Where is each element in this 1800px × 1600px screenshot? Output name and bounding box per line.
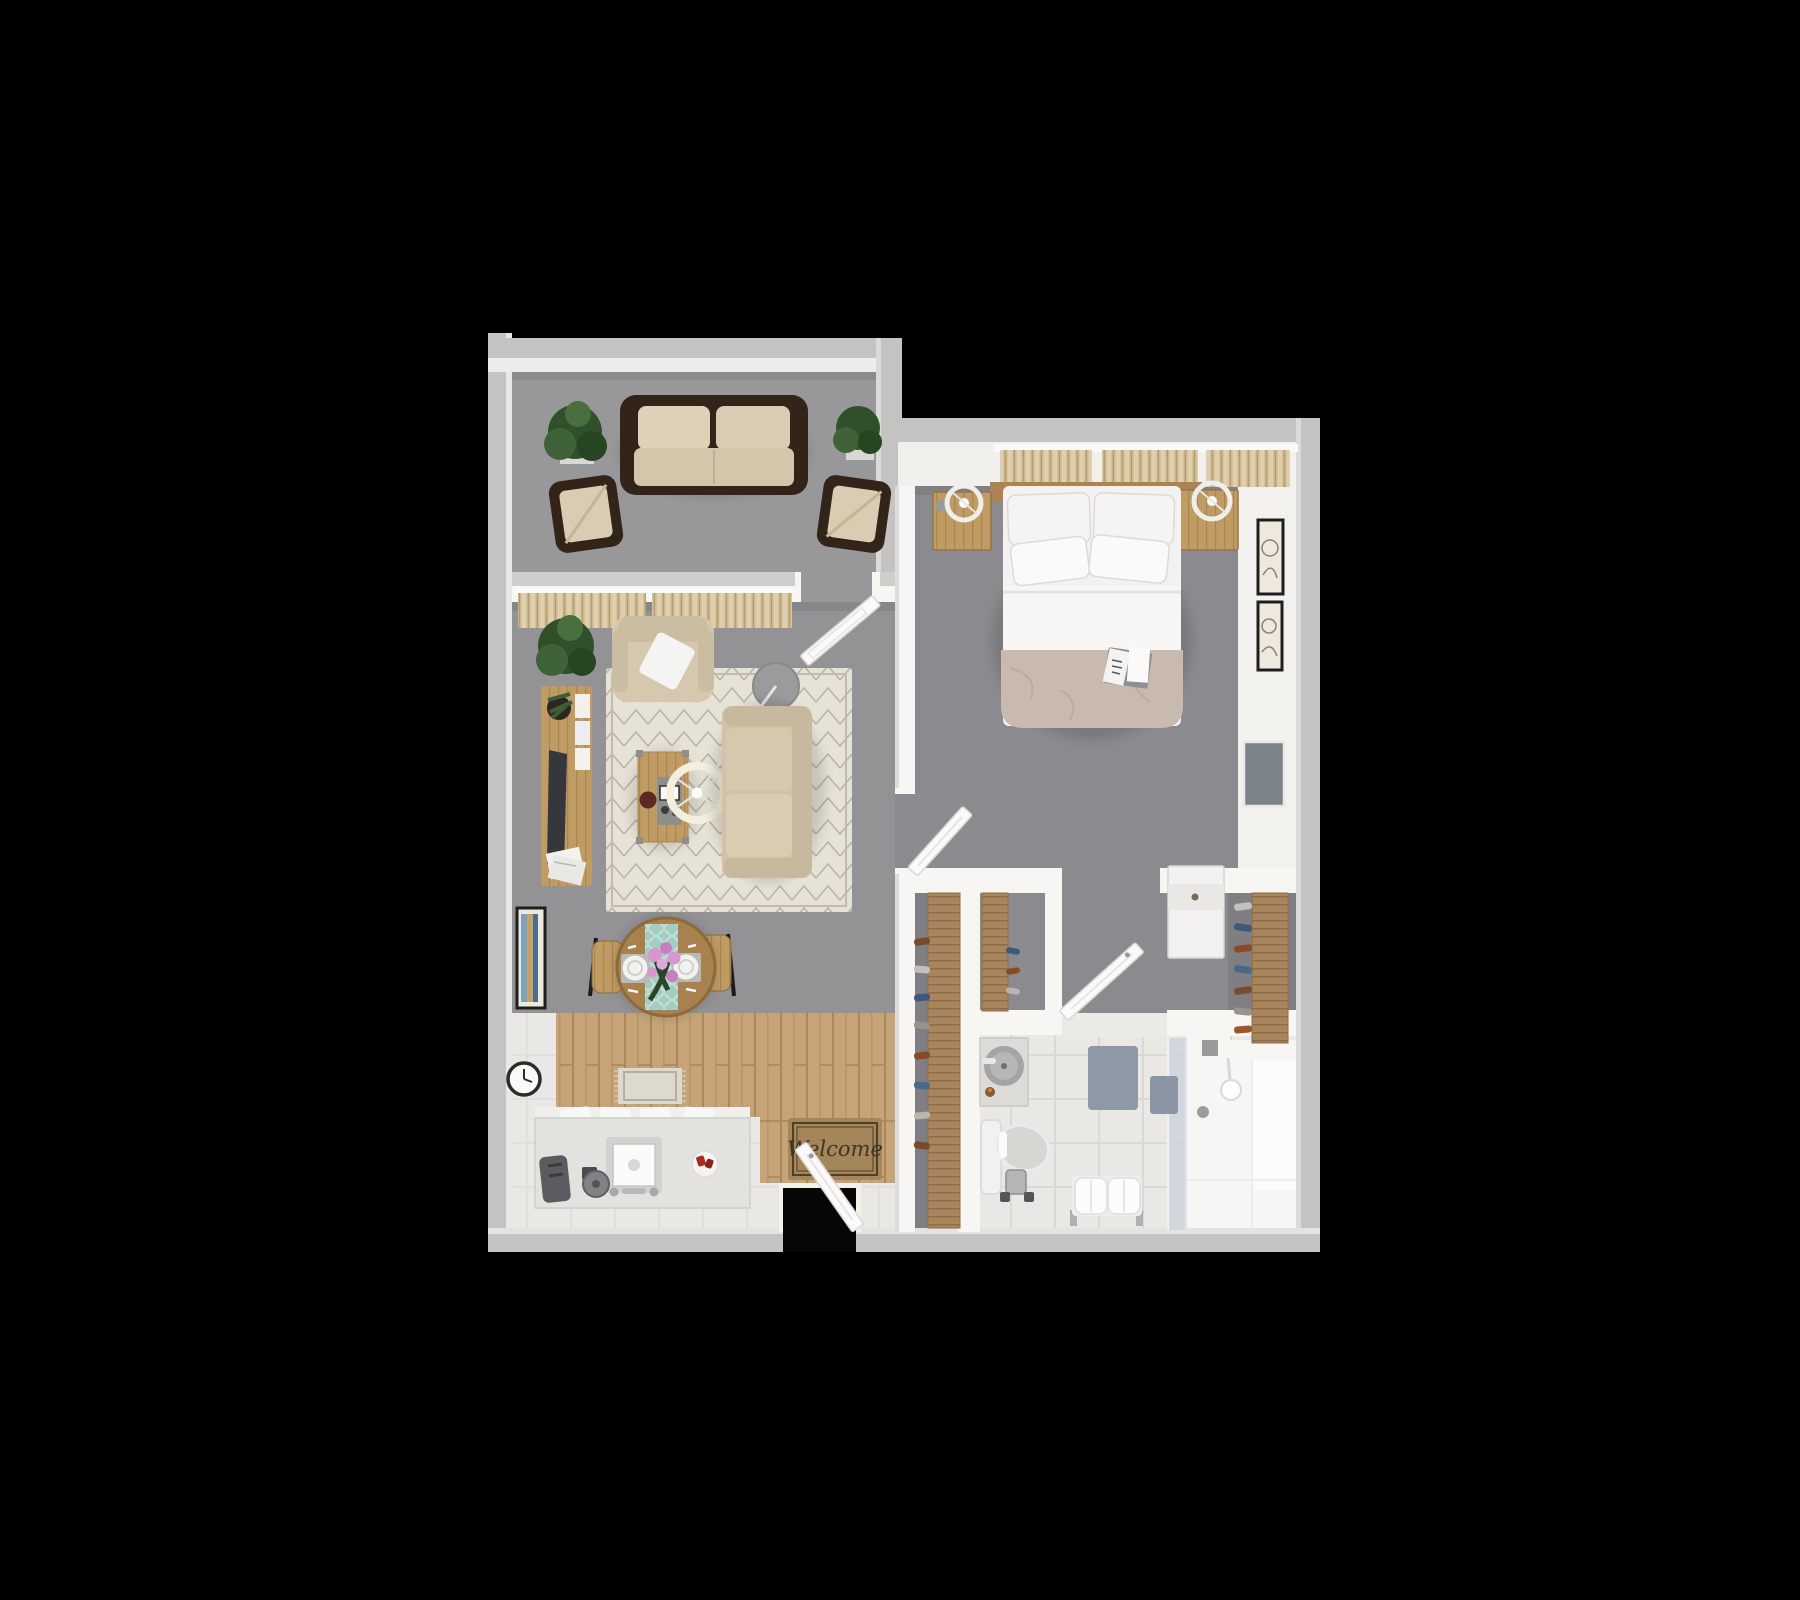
armchair-arm-left [612, 630, 628, 692]
kitchen-sink [606, 1137, 662, 1197]
shower-glass [1168, 1038, 1186, 1230]
dining-table [614, 915, 718, 1019]
wall-art [517, 908, 545, 1008]
outdoor-sofa-pillow-left [638, 406, 710, 450]
wall-frame-upper [1258, 520, 1283, 594]
patio-armchair-left [547, 474, 624, 555]
faucet [622, 1188, 646, 1194]
patio-right-wall-edge [876, 338, 881, 594]
outer-wall-right-edge [1296, 418, 1301, 1252]
towel-on-glass [1150, 1076, 1178, 1114]
bedroom-wall-tv [1244, 742, 1284, 806]
bath-mat [1088, 1046, 1138, 1110]
pillow-front-right [1088, 534, 1170, 584]
patio-armchair-right [815, 474, 892, 555]
pillow-front-left [1010, 536, 1091, 587]
outer-wall-patio-top [488, 338, 900, 360]
shower [1150, 1038, 1296, 1230]
closet-divider-wall [958, 893, 980, 1232]
basin-faucet [982, 1058, 996, 1064]
dresser [1168, 866, 1224, 958]
nightstand-left [933, 486, 991, 550]
sofa-cushion-bottom [726, 794, 792, 857]
nightstand-right [1178, 483, 1238, 550]
dresser-knob [1192, 894, 1199, 901]
toilet-tank [981, 1120, 1001, 1194]
outer-wall-patio-top-edge [488, 358, 900, 372]
bathroom-top-wall-left [980, 1010, 1062, 1035]
wall-shaft [1202, 1040, 1218, 1056]
patio-door-jamb-left [795, 572, 801, 602]
bedroom-doorway [895, 788, 915, 874]
shower-arm [1228, 1058, 1230, 1080]
wood-coaster [640, 792, 657, 809]
armchair-arm-right [698, 630, 714, 692]
bathroom-threshold [1062, 1013, 1167, 1037]
kitchen-runner-rug [616, 1068, 684, 1104]
open-book [1103, 647, 1153, 689]
hall-east-wall [1045, 893, 1062, 1015]
outer-wall-bedroom-top [898, 418, 1320, 444]
patio-door-opening [795, 572, 880, 602]
shower-drain [1197, 1106, 1209, 1118]
sofa-arm-top [724, 706, 810, 726]
shower-wall-highlight [1252, 1060, 1296, 1190]
living-top-wall-a [512, 572, 795, 588]
shadow-patio-top [502, 372, 878, 380]
floor-plan-render: Welcome [0, 0, 1800, 1600]
wall-clock [508, 1063, 540, 1095]
duvet [1001, 650, 1183, 728]
closet-top-wall-left [912, 868, 1062, 893]
plate-with-food [692, 1151, 718, 1177]
double-bed [992, 486, 1192, 740]
outdoor-sofa-pillow-right [716, 406, 790, 450]
tv-console [541, 686, 592, 886]
kitchen-counter [535, 1106, 750, 1208]
toaster [539, 1155, 572, 1204]
closet-shelf-right [1252, 893, 1288, 1043]
floor-plan-canvas: Welcome [0, 0, 1800, 1600]
shower-head [1221, 1080, 1241, 1100]
closet-shelf-middle [982, 893, 1008, 1011]
vanity [980, 1038, 1028, 1106]
sofa-arm-bottom [724, 858, 810, 878]
closet-shelf-left [928, 893, 960, 1228]
sofa-cushion-top [726, 728, 792, 791]
bed-sheet [1003, 586, 1181, 652]
sofa-backrest [792, 710, 812, 874]
outer-wall-left-edge [506, 333, 512, 1252]
living-armchair [612, 616, 714, 702]
wall-frame-lower [1258, 602, 1282, 670]
living-sofa [710, 700, 826, 884]
